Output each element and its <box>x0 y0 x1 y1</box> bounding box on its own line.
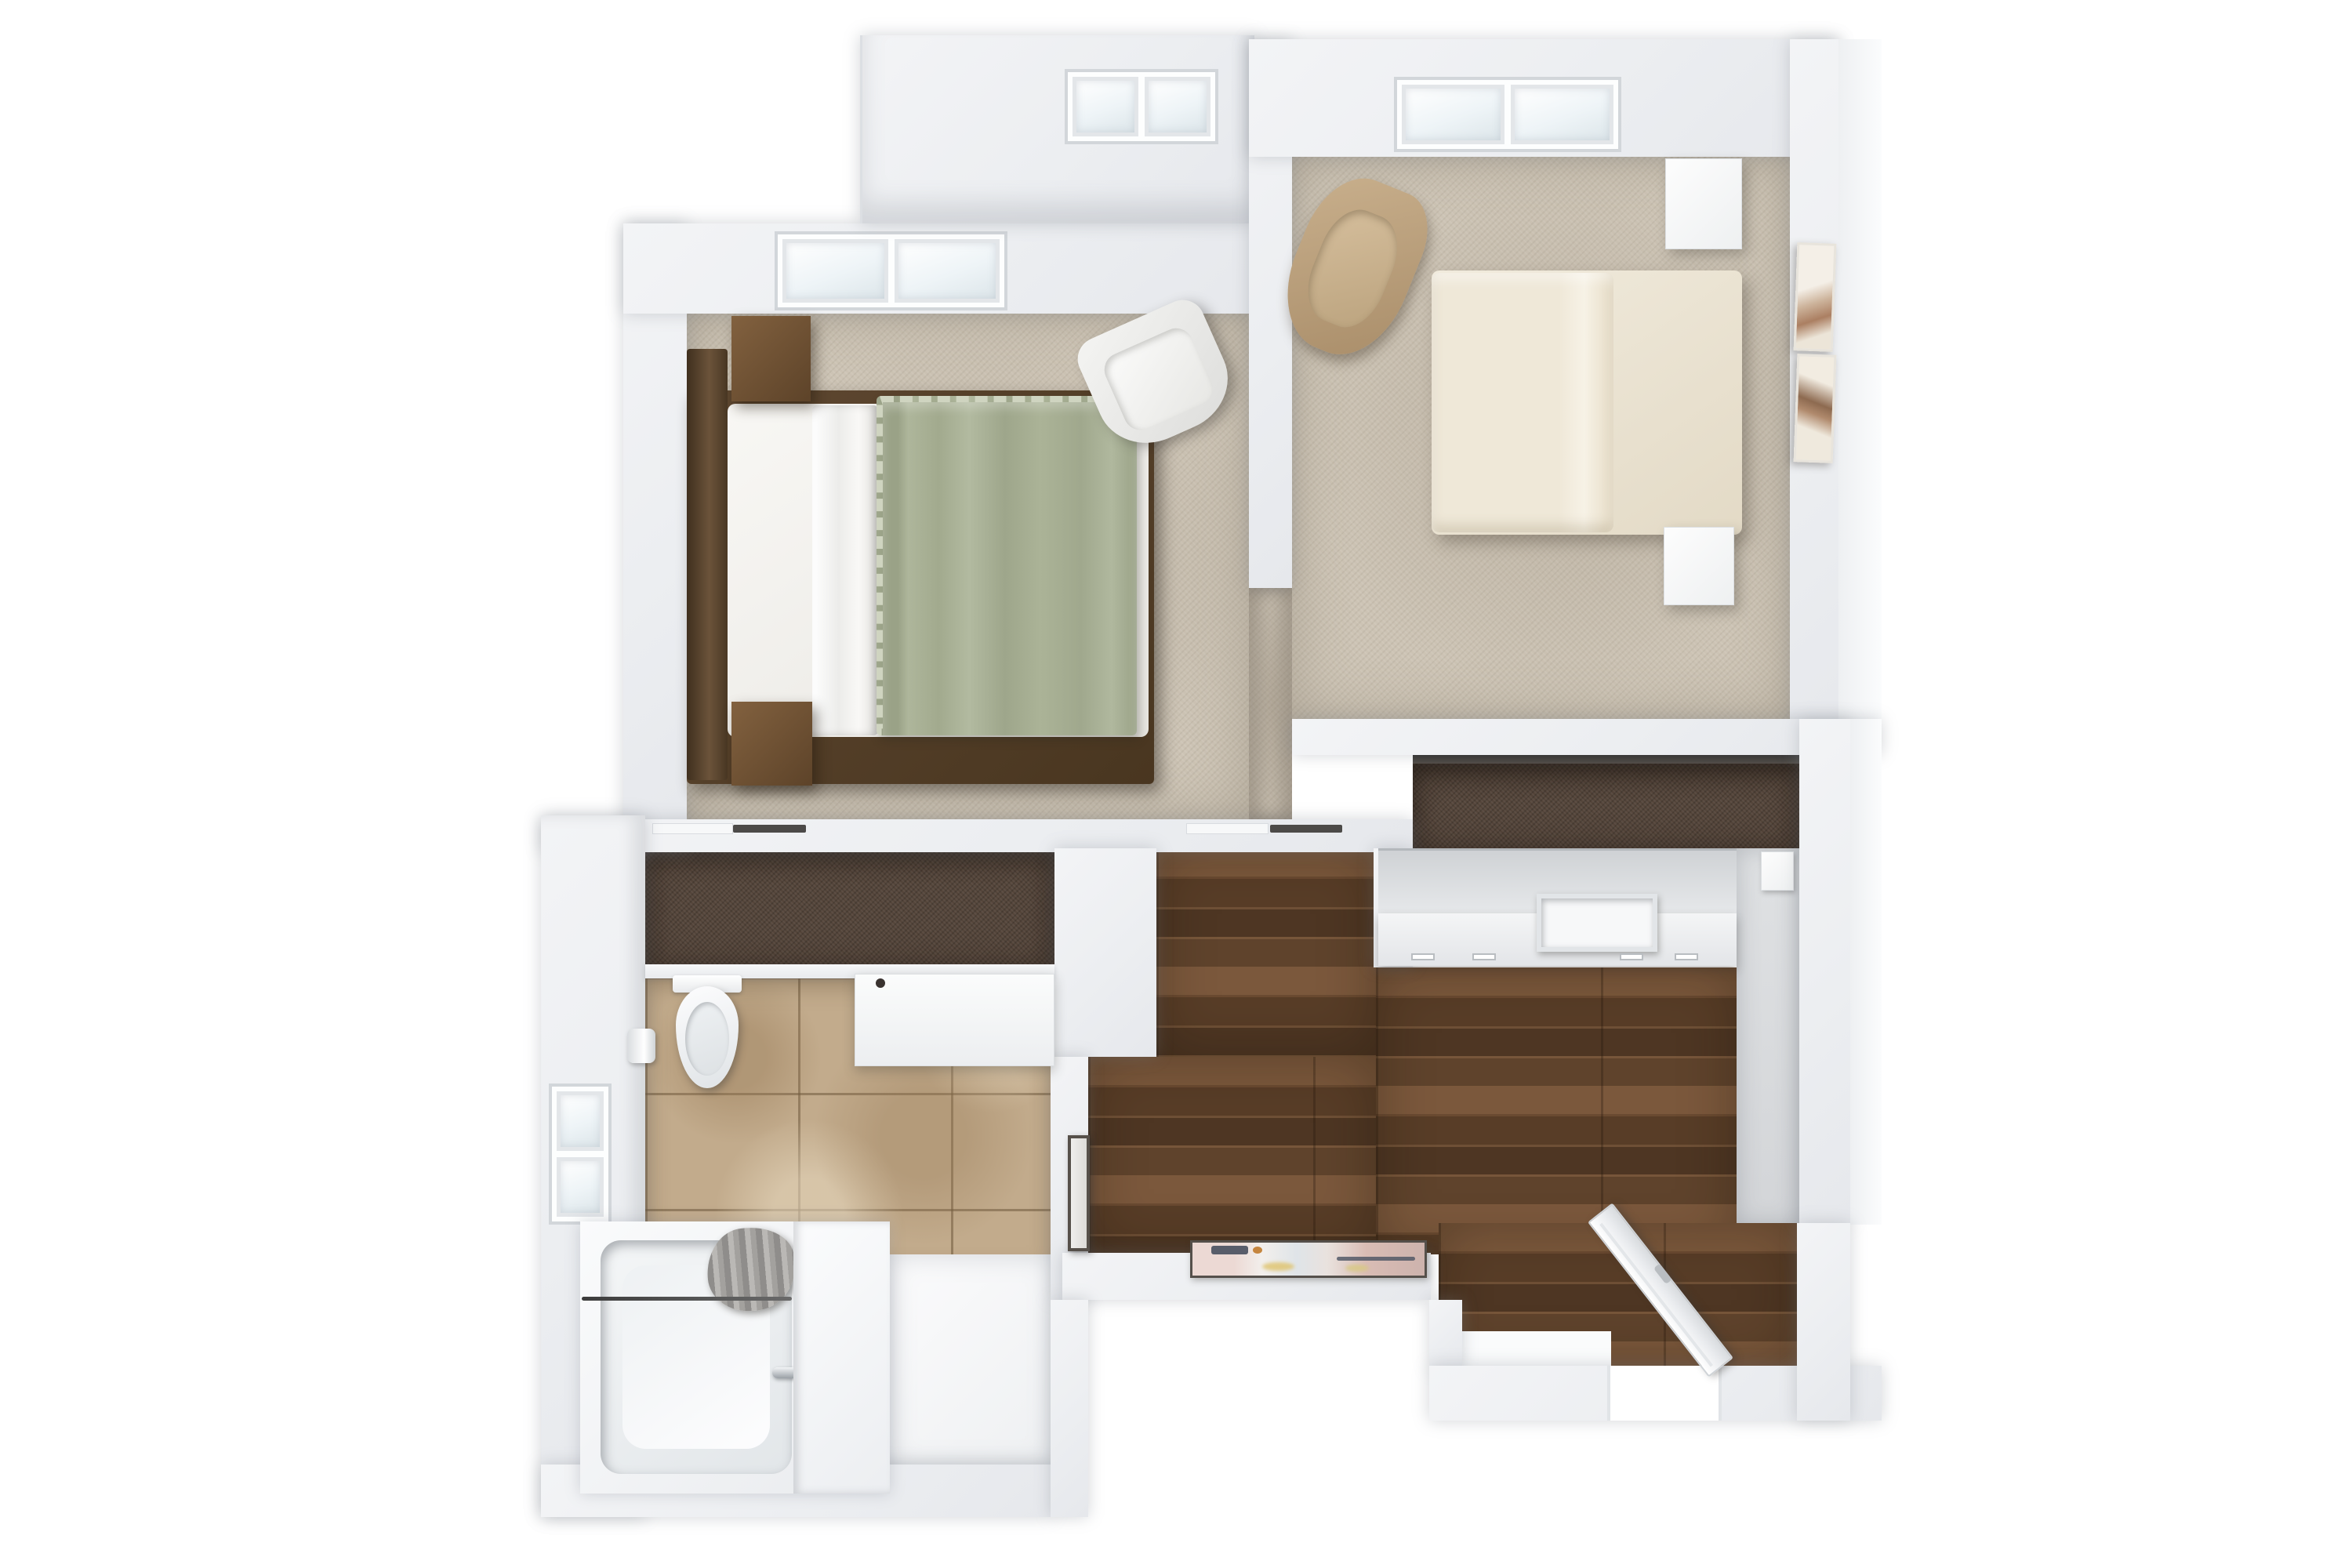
dressing-area-white-object <box>1761 851 1794 891</box>
bathroom-hall-divider-upper <box>1054 848 1156 1057</box>
bedroom2-leaning-artwork-top <box>1794 242 1837 352</box>
window-pane <box>557 1157 604 1217</box>
bedroom1-lamp-north <box>731 321 790 380</box>
shower-curtain-rod <box>582 1297 792 1301</box>
toilet-paper-holder <box>627 1029 655 1063</box>
artwork-yellow-smudge2 <box>1345 1265 1369 1272</box>
entry-door-opening <box>1607 1366 1722 1421</box>
window-pane <box>1511 85 1613 144</box>
hallway-wood-floor-lower <box>1088 1057 1376 1254</box>
bed1-headboard <box>687 349 728 780</box>
floorplan-canvas <box>0 0 2352 1568</box>
hallway-wood-floor-east <box>1376 967 1737 1254</box>
bedroom2-lamp-north <box>1671 174 1734 237</box>
bed1-pillow-striped-north <box>760 427 812 558</box>
dresser-drawer-pull <box>1620 953 1643 960</box>
bed2-pillow-cream-north <box>1660 269 1736 413</box>
bed1-white-duvet <box>812 405 878 735</box>
window-pane <box>895 239 1000 303</box>
bedroom1-closet-door-gap <box>733 825 806 833</box>
vanity-faucet-spout <box>947 978 964 996</box>
bedroom-hallway-door-sill <box>1186 823 1269 834</box>
bedroom-hallway-door-gap <box>1270 825 1342 833</box>
bathroom-window <box>549 1083 612 1225</box>
bedroom1-lamp-south <box>732 715 792 775</box>
east-wall-outer-face-mid <box>1850 719 1882 1225</box>
dresser-drawer-pull <box>1472 953 1496 960</box>
artwork-yellow-smudge <box>1262 1262 1294 1271</box>
vestibule-threshold-landing <box>1462 1331 1611 1366</box>
bedroom2-lamp-south <box>1686 532 1739 585</box>
vestibule-east-wall <box>1797 1223 1850 1421</box>
artwork-orange-dot <box>1253 1247 1262 1254</box>
artwork-navy-streak <box>1337 1257 1416 1261</box>
vestibule-west-wall-jog <box>1429 1300 1462 1370</box>
artwork-navy-stroke <box>1211 1246 1248 1254</box>
bumpout-skylight-window <box>1065 69 1218 144</box>
closet-left-rod-zone <box>651 861 1051 958</box>
bed1-pillow-striped-south <box>760 568 812 710</box>
dressing-area-gray-floor <box>1737 848 1799 1225</box>
bed1-green-throw-blanket <box>877 396 1137 735</box>
hallway-artwork <box>1190 1240 1427 1278</box>
window-pane <box>1402 85 1504 144</box>
east-wall-outer-face <box>1838 39 1882 754</box>
bathroom-white-floor <box>890 1254 1054 1468</box>
linen-shelf-unit <box>793 1221 890 1494</box>
toilet-seat-inner <box>685 1002 729 1076</box>
bed2-pillow-cream-south <box>1661 412 1736 535</box>
bedroom2-skylight-window <box>1394 77 1621 152</box>
hallway-wood-floor-upper <box>1156 848 1376 1057</box>
closet-dresser-open-drawer <box>1537 894 1657 952</box>
closet-left-rod <box>651 906 1051 910</box>
dresser-drawer-pull <box>1675 953 1698 960</box>
vanity-dark-accessory <box>876 978 885 988</box>
leaning-mirror <box>1068 1135 1090 1251</box>
closet-right-east-wall <box>1799 719 1850 1225</box>
vanity-faucet-handle-left <box>862 980 877 994</box>
bedroom-connector-carpet <box>1249 588 1292 819</box>
bedroom1-skylight-window <box>775 231 1007 310</box>
dresser-drawer-pull <box>1411 953 1435 960</box>
bedroom2-leaning-artwork-bottom <box>1794 354 1837 463</box>
bed2-cream-duvet <box>1432 273 1613 532</box>
bedroom1-closet-door-sill <box>652 823 733 834</box>
bathroom-east-wall-lower <box>1051 1300 1088 1517</box>
window-pane <box>1073 77 1138 136</box>
window-pane <box>1145 77 1210 136</box>
closet-right-rod <box>1421 792 1797 797</box>
bedroom1-west-wall <box>623 223 687 851</box>
closet-right-rod-zone <box>1421 746 1797 845</box>
window-pane <box>557 1091 604 1151</box>
window-pane <box>782 239 888 303</box>
bathtub-chrome-fixture <box>723 1348 781 1406</box>
vanity-sink-basin <box>892 996 1018 1054</box>
vanity-faucet-handle-right <box>1019 982 1033 996</box>
